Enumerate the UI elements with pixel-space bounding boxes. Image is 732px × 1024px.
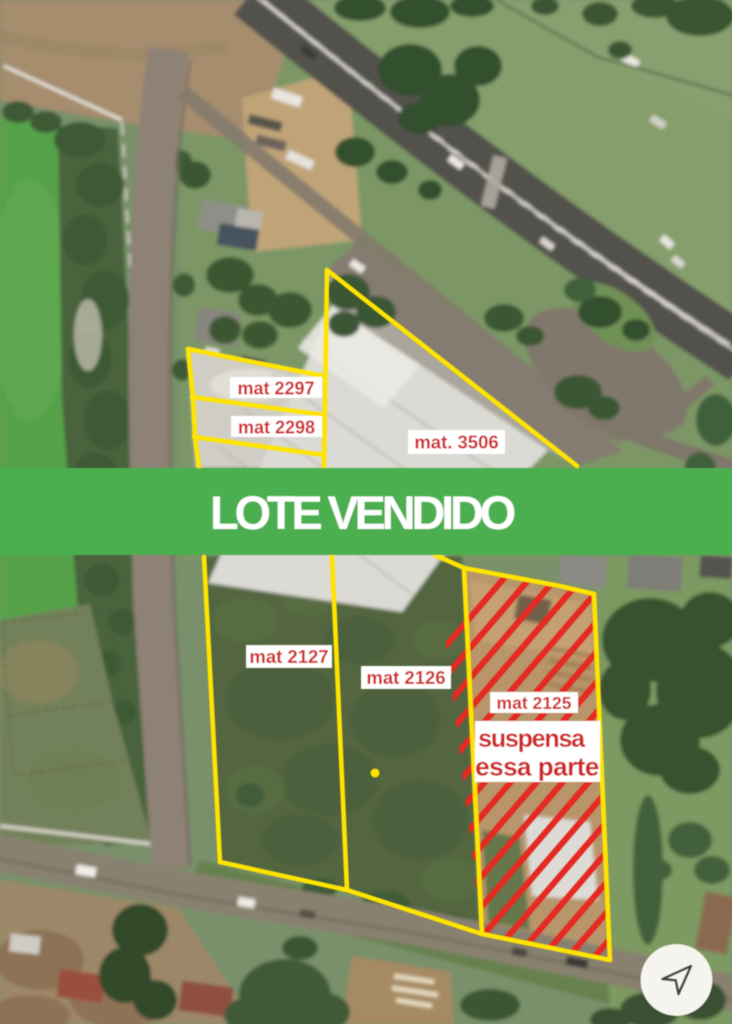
svg-text:mat 2125: mat 2125 [497,693,572,713]
svg-text:mat 2298: mat 2298 [238,418,315,438]
svg-text:suspensa: suspensa [478,725,586,753]
svg-text:mat 2127: mat 2127 [249,646,328,667]
svg-text:mat 2126: mat 2126 [366,667,445,688]
svg-text:mat. 3506: mat. 3506 [414,432,498,453]
svg-text:LOTE VENDIDO: LOTE VENDIDO [210,486,515,539]
svg-text:essa parte: essa parte [475,752,599,782]
svg-text:mat 2297: mat 2297 [237,379,314,399]
